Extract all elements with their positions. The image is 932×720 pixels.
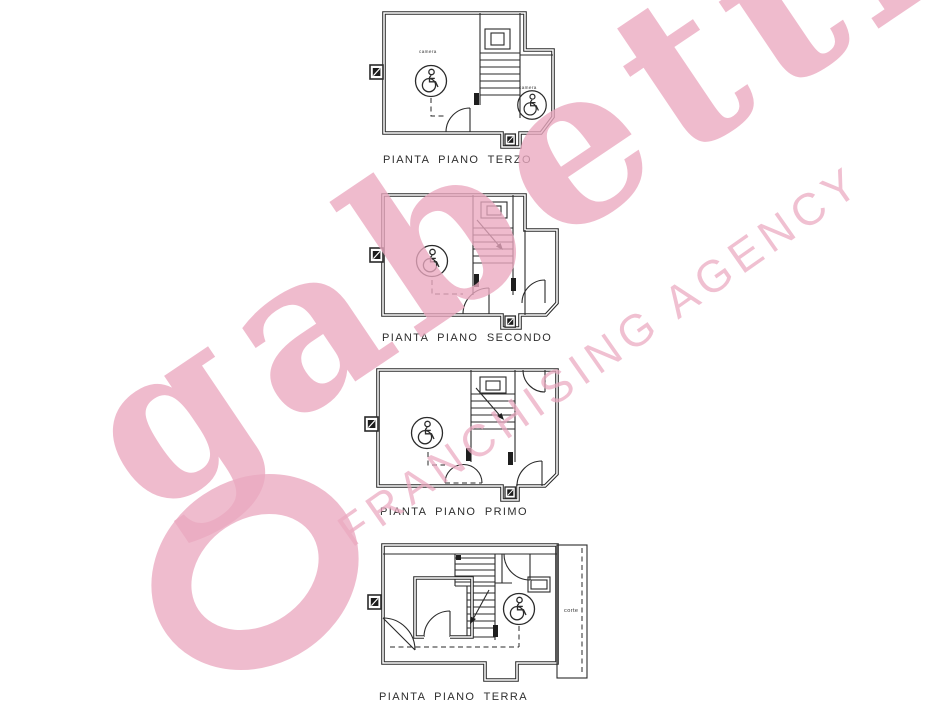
interior-walls	[463, 195, 545, 315]
room-label: camera	[519, 85, 537, 90]
courtyard-label: corte	[564, 608, 578, 614]
interior-walls	[446, 13, 553, 132]
door-arc	[383, 618, 415, 650]
door-arc	[463, 288, 489, 314]
floorplan-canvas: camera camera PIANTA PIANO TERZO PIANTA …	[0, 0, 932, 720]
plan-label-secondo: PIANTA PIANO SECONDO	[382, 332, 552, 344]
door-jamb	[474, 274, 479, 287]
wall-marker-icon	[505, 487, 515, 498]
outer-wall	[383, 545, 557, 680]
floor-plan-terzo: camera camera PIANTA PIANO TERZO	[370, 13, 553, 166]
plan-label-primo: PIANTA PIANO PRIMO	[380, 506, 528, 518]
wall-marker-icon	[370, 65, 383, 79]
wall-marker-icon	[505, 134, 515, 145]
outer-wall	[384, 13, 553, 147]
door-arc	[446, 108, 470, 132]
path-dashed	[428, 452, 445, 465]
door-arc	[504, 554, 530, 580]
room-label: camera	[419, 49, 437, 54]
floor-plan-secondo: PIANTA PIANO SECONDO	[370, 195, 557, 344]
plan-label-terzo: PIANTA PIANO TERZO	[383, 154, 532, 166]
wheelchair-icon	[416, 66, 447, 97]
stair-mark	[456, 555, 461, 560]
watermark-logo: gabetti	[37, 0, 932, 562]
door-arc	[424, 611, 450, 637]
watermark-tagline: FRANCHISING AGENCY	[328, 155, 871, 556]
outer-wall	[378, 370, 557, 500]
door-jamb	[466, 448, 471, 461]
inner-room-wall	[415, 578, 472, 637]
floorplan-sheet: camera camera PIANTA PIANO TERZO PIANTA …	[0, 0, 932, 720]
wheelchair-icon	[518, 91, 547, 120]
door-jamb	[493, 625, 498, 637]
wheelchair-icon	[412, 418, 443, 449]
wall-marker-icon	[365, 417, 378, 431]
path-dashed	[432, 280, 463, 294]
wheelchair-icon	[417, 246, 448, 277]
wall-marker-icon	[368, 595, 381, 609]
door-jamb	[508, 452, 513, 465]
logo-g-loop	[141, 462, 369, 681]
wall-marker-icon	[505, 316, 515, 327]
interior-walls	[445, 370, 545, 486]
door-arc	[517, 461, 542, 486]
wall-marker-icon	[370, 248, 383, 262]
floor-plan-terra: corte PIANTA PIANO TERRA	[368, 545, 587, 703]
floor-plan-primo: PIANTA PIANO PRIMO	[365, 370, 557, 518]
door-jamb	[474, 93, 479, 105]
path-dashed	[431, 98, 446, 116]
wheelchair-icon	[504, 594, 535, 625]
door-arc	[445, 465, 482, 484]
door-jamb	[511, 278, 516, 291]
outer-wall	[383, 195, 557, 328]
plan-label-terra: PIANTA PIANO TERRA	[379, 691, 528, 703]
door-arc	[523, 370, 545, 392]
